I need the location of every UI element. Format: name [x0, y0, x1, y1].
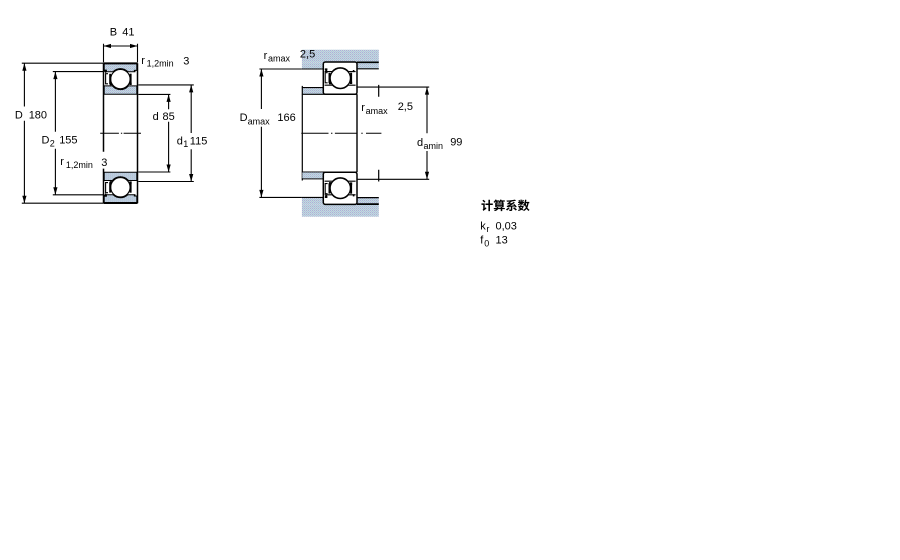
- svg-text:3: 3: [183, 55, 189, 67]
- svg-text:41: 41: [122, 27, 134, 39]
- svg-text:k: k: [480, 220, 486, 232]
- svg-text:1,2min: 1,2min: [147, 59, 174, 69]
- svg-text:d: d: [153, 111, 159, 123]
- svg-text:amax: amax: [248, 117, 271, 127]
- svg-text:3: 3: [101, 157, 107, 169]
- svg-text:180: 180: [29, 109, 47, 121]
- svg-text:r: r: [264, 50, 268, 62]
- svg-text:0,03: 0,03: [496, 220, 517, 232]
- svg-text:amax: amax: [366, 106, 389, 116]
- svg-text:85: 85: [163, 111, 175, 123]
- svg-text:D: D: [42, 135, 50, 147]
- svg-text:B: B: [110, 27, 117, 39]
- svg-text:r: r: [60, 156, 64, 168]
- svg-text:99: 99: [450, 137, 462, 149]
- svg-text:2: 2: [50, 138, 55, 148]
- svg-text:r: r: [361, 102, 365, 114]
- svg-text:D: D: [240, 112, 248, 124]
- svg-text:amax: amax: [268, 54, 291, 64]
- svg-text:13: 13: [496, 235, 508, 247]
- svg-text:d: d: [417, 137, 423, 149]
- svg-text:155: 155: [59, 135, 77, 147]
- svg-text:115: 115: [190, 135, 208, 147]
- svg-text:d: d: [177, 135, 183, 147]
- svg-text:r: r: [141, 55, 145, 67]
- svg-text:D: D: [15, 109, 23, 121]
- svg-text:2,5: 2,5: [300, 48, 315, 60]
- svg-text:166: 166: [277, 112, 295, 124]
- svg-text:2,5: 2,5: [398, 101, 413, 113]
- svg-text:1,2min: 1,2min: [66, 160, 93, 170]
- svg-text:1: 1: [183, 139, 188, 149]
- svg-text:0: 0: [484, 239, 489, 249]
- svg-text:amin: amin: [424, 141, 444, 151]
- svg-text:r: r: [486, 224, 489, 234]
